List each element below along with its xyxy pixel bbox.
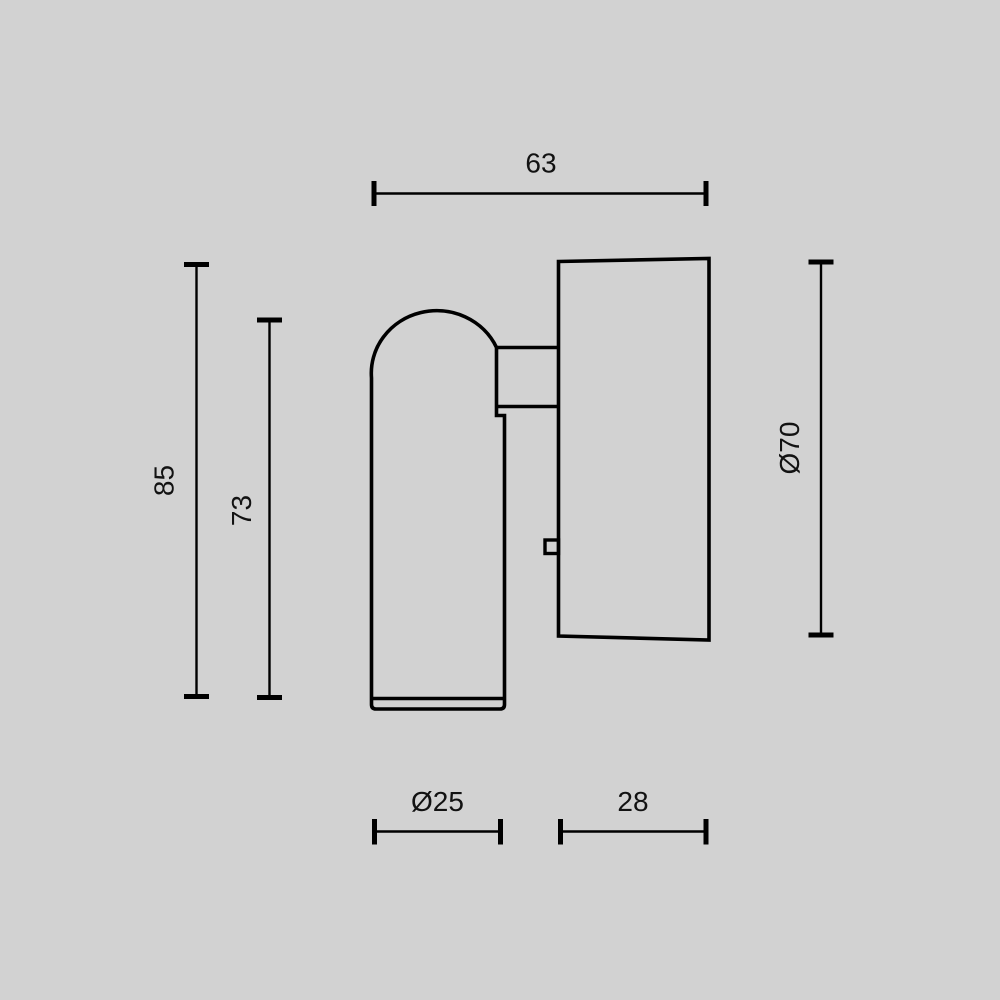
dimension-drawing-canvas: 63 85 73 Ø70 Ø25 28 (0, 0, 1000, 1000)
dimension-label-top-width: 63 (525, 148, 556, 179)
drawing-background (0, 0, 1000, 1000)
spotlight-dimension-drawing: 63 85 73 Ø70 Ø25 28 (0, 0, 1000, 1000)
dimension-label-mount-depth: 28 (617, 786, 648, 817)
dimension-label-head-diameter: Ø25 (411, 786, 464, 817)
dimension-label-overall-height: 85 (149, 465, 180, 496)
dimension-label-head-height: 73 (226, 495, 257, 526)
dimension-label-cup-diameter: Ø70 (774, 422, 805, 475)
